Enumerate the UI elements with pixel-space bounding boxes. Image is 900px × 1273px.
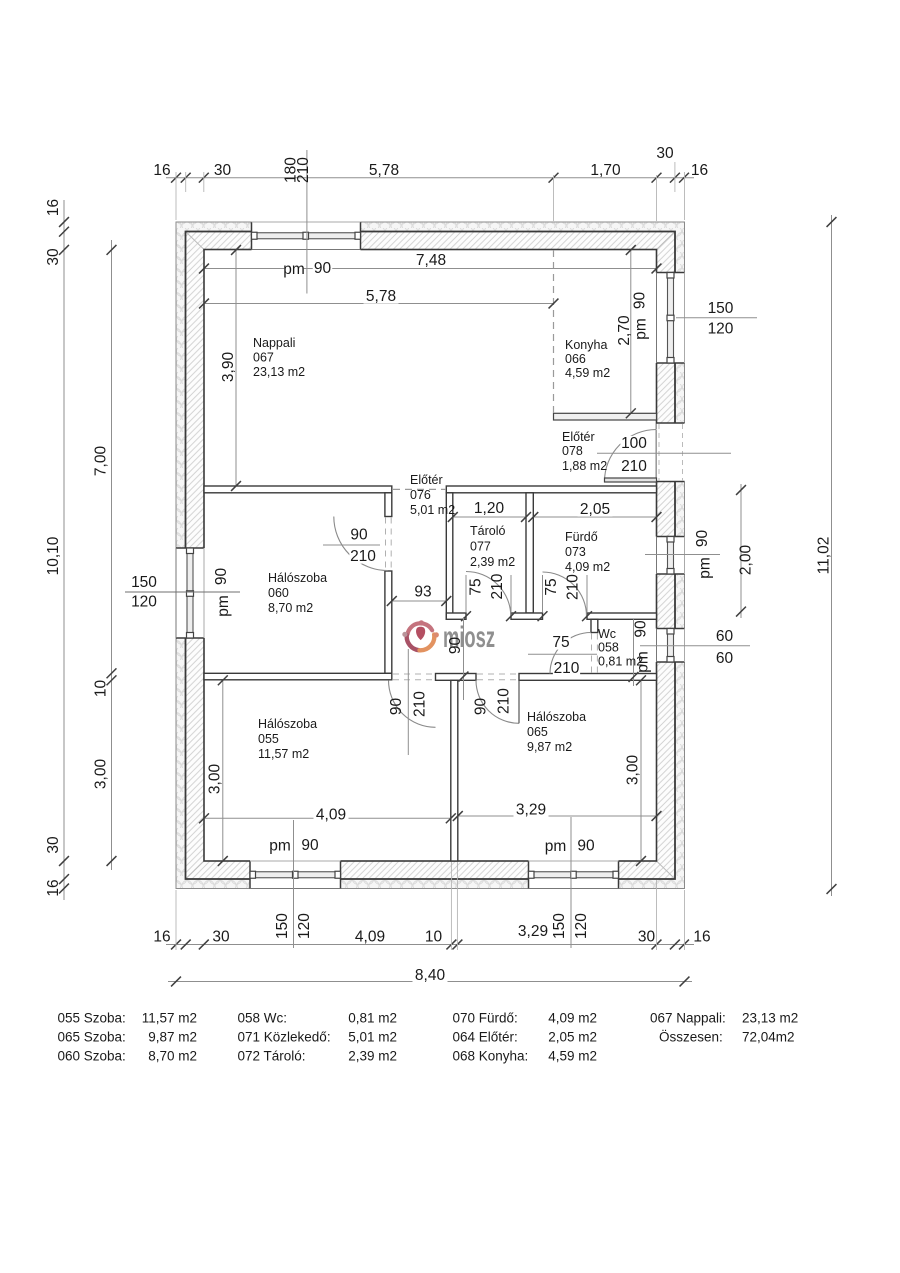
svg-text:3,90: 3,90 (220, 352, 237, 383)
svg-text:90: 90 (694, 530, 711, 548)
svg-text:11,02: 11,02 (816, 537, 833, 575)
svg-text:120: 120 (708, 321, 734, 338)
svg-text:10: 10 (93, 680, 110, 698)
svg-text:2,70: 2,70 (616, 315, 633, 346)
svg-text:pm: pm (545, 838, 567, 855)
svg-text:90: 90 (447, 637, 464, 655)
svg-text:Wc: Wc (598, 627, 616, 641)
svg-text:120: 120 (296, 913, 313, 939)
svg-text:Előtér: Előtér (562, 430, 595, 444)
svg-text:150: 150 (551, 913, 568, 939)
svg-text:1,88 m2: 1,88 m2 (562, 459, 607, 473)
svg-text:11,57 m2: 11,57 m2 (258, 747, 309, 761)
svg-text:058 Wc:: 058 Wc: (238, 1011, 288, 1026)
svg-text:5,78: 5,78 (366, 288, 396, 305)
svg-text:120: 120 (131, 594, 157, 611)
svg-text:073: 073 (565, 545, 586, 559)
svg-text:90: 90 (314, 260, 332, 277)
svg-text:066: 066 (565, 352, 586, 366)
svg-text:90: 90 (350, 527, 368, 544)
svg-text:23,13 m2: 23,13 m2 (253, 365, 305, 379)
svg-text:90: 90 (213, 568, 230, 586)
svg-text:8,70 m2: 8,70 m2 (268, 601, 313, 615)
svg-text:30: 30 (638, 929, 656, 946)
svg-text:210: 210 (489, 573, 506, 599)
svg-text:5,01 m2: 5,01 m2 (348, 1030, 397, 1045)
svg-text:30: 30 (45, 836, 62, 854)
svg-text:100: 100 (621, 435, 647, 452)
svg-text:3,00: 3,00 (207, 764, 224, 795)
svg-text:30: 30 (214, 162, 232, 179)
svg-text:072 Tároló:: 072 Tároló: (238, 1049, 306, 1064)
svg-text:7,00: 7,00 (93, 446, 110, 477)
svg-text:pm: pm (215, 595, 232, 617)
svg-text:150: 150 (274, 913, 291, 939)
svg-text:067: 067 (253, 351, 274, 365)
svg-text:75: 75 (552, 634, 569, 651)
svg-text:75: 75 (543, 578, 560, 595)
svg-text:90: 90 (632, 292, 649, 310)
svg-text:210: 210 (554, 660, 580, 677)
svg-text:2,05 m2: 2,05 m2 (548, 1030, 597, 1045)
svg-text:2,39 m2: 2,39 m2 (348, 1049, 397, 1064)
svg-text:4,09: 4,09 (355, 929, 385, 946)
svg-text:4,59 m2: 4,59 m2 (565, 366, 610, 380)
svg-text:0,81 m2: 0,81 m2 (598, 655, 643, 669)
svg-text:60: 60 (716, 628, 734, 645)
svg-text:071 Közlekedő:: 071 Közlekedő: (238, 1030, 331, 1045)
svg-text:10,10: 10,10 (45, 536, 62, 575)
svg-text:Hálószoba: Hálószoba (527, 710, 586, 724)
svg-text:30: 30 (45, 248, 62, 266)
svg-text:4,09 m2: 4,09 m2 (548, 1011, 597, 1026)
svg-text:60: 60 (716, 650, 734, 667)
svg-text:75: 75 (468, 578, 485, 595)
svg-text:5,78: 5,78 (369, 162, 399, 179)
svg-text:23,13 m2: 23,13 m2 (742, 1011, 798, 1026)
svg-text:055 Szoba:: 055 Szoba: (58, 1011, 126, 1026)
svg-text:1,20: 1,20 (474, 500, 505, 517)
svg-text:3,00: 3,00 (625, 755, 642, 786)
svg-text:064 Előtér:: 064 Előtér: (453, 1030, 518, 1045)
svg-text:30: 30 (212, 929, 230, 946)
svg-text:210: 210 (412, 691, 429, 717)
svg-text:210: 210 (350, 548, 376, 565)
svg-text:Nappali: Nappali (253, 336, 295, 350)
svg-text:9,87 m2: 9,87 m2 (148, 1030, 197, 1045)
svg-text:90: 90 (388, 698, 405, 716)
svg-text:8,70 m2: 8,70 m2 (148, 1049, 197, 1064)
svg-text:90: 90 (473, 698, 490, 716)
svg-text:068 Konyha:: 068 Konyha: (453, 1049, 529, 1064)
svg-text:30: 30 (656, 145, 674, 162)
svg-text:210: 210 (565, 574, 582, 600)
svg-text:16: 16 (45, 879, 62, 896)
svg-text:4,59 m2: 4,59 m2 (548, 1049, 597, 1064)
svg-text:pm: pm (269, 838, 291, 855)
svg-text:16: 16 (45, 199, 62, 216)
svg-text:060 Szoba:: 060 Szoba: (58, 1049, 126, 1064)
svg-text:0,81 m2: 0,81 m2 (348, 1011, 397, 1026)
svg-text:16: 16 (691, 162, 708, 179)
svg-text:16: 16 (153, 929, 170, 946)
svg-text:150: 150 (131, 574, 157, 591)
svg-text:pm: pm (633, 318, 650, 340)
svg-text:93: 93 (414, 584, 431, 601)
svg-text:8,40: 8,40 (415, 967, 446, 984)
svg-text:5,01 m2: 5,01 m2 (410, 503, 455, 517)
svg-text:pm: pm (697, 557, 714, 579)
svg-text:2,05: 2,05 (580, 501, 610, 518)
svg-text:210: 210 (496, 688, 513, 714)
svg-text:3,29: 3,29 (518, 923, 548, 940)
svg-text:2,00: 2,00 (738, 545, 755, 576)
svg-text:065: 065 (527, 725, 548, 739)
svg-text:065 Szoba:: 065 Szoba: (58, 1030, 126, 1045)
svg-text:pm: pm (283, 261, 305, 278)
svg-text:078: 078 (562, 444, 583, 458)
svg-text:4,09 m2: 4,09 m2 (565, 560, 610, 574)
svg-text:90: 90 (633, 620, 650, 638)
svg-text:077: 077 (470, 540, 491, 554)
svg-text:16: 16 (693, 929, 710, 946)
svg-text:055: 055 (258, 732, 279, 746)
svg-text:Hálószoba: Hálószoba (258, 717, 317, 731)
svg-text:058: 058 (598, 641, 619, 655)
svg-text:3,29: 3,29 (516, 802, 546, 819)
svg-text:9,87 m2: 9,87 m2 (527, 740, 572, 754)
svg-text:210: 210 (621, 458, 647, 475)
svg-text:060: 060 (268, 586, 289, 600)
svg-text:2,39 m2: 2,39 m2 (470, 555, 515, 569)
svg-text:150: 150 (708, 300, 734, 317)
svg-text:72,04m2: 72,04m2 (742, 1030, 795, 1045)
svg-text:7,48: 7,48 (416, 252, 446, 269)
svg-text:11,57 m2: 11,57 m2 (142, 1011, 197, 1026)
svg-text:4,09: 4,09 (316, 807, 346, 824)
svg-text:16: 16 (153, 162, 170, 179)
svg-text:Összesen:: Összesen: (659, 1030, 723, 1045)
svg-text:076: 076 (410, 488, 431, 502)
svg-text:90: 90 (577, 838, 595, 855)
svg-text:120: 120 (573, 913, 590, 939)
svg-text:Előtér: Előtér (410, 473, 443, 487)
svg-text:10: 10 (425, 929, 443, 946)
svg-text:067 Nappali:: 067 Nappali: (650, 1011, 726, 1026)
svg-text:Konyha: Konyha (565, 338, 607, 352)
svg-text:Fürdő: Fürdő (565, 530, 598, 544)
svg-text:070 Fürdő:: 070 Fürdő: (453, 1011, 518, 1026)
svg-text:3,00: 3,00 (93, 759, 110, 790)
svg-text:1,70: 1,70 (590, 162, 621, 179)
svg-text:Tároló: Tároló (470, 524, 505, 538)
svg-text:Hálószoba: Hálószoba (268, 571, 327, 585)
svg-text:210: 210 (295, 157, 312, 183)
svg-text:90: 90 (301, 837, 319, 854)
